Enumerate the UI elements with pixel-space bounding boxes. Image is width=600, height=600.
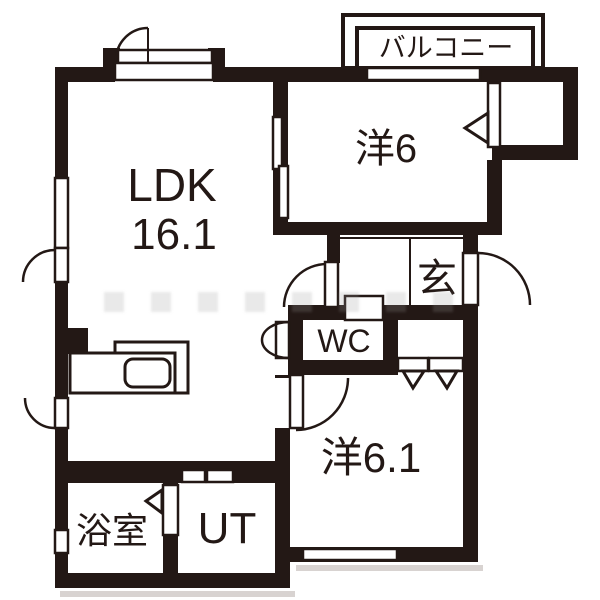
wall-segment: [55, 67, 68, 588]
kitchen-wall-stub: [55, 328, 88, 354]
watermark: [104, 292, 453, 312]
building-shadow: [296, 565, 483, 571]
watermark-glyph: [292, 292, 312, 312]
watermark-glyph: [433, 292, 453, 312]
door-leaf-ldk-hall: [325, 262, 338, 307]
sliding-door-panel-ut: [207, 470, 233, 482]
closet-pleat-mark: [403, 371, 424, 388]
watermark-glyph: [386, 292, 406, 312]
watermark-glyph: [151, 292, 171, 312]
wall-segment: [288, 360, 398, 375]
casement-leaf-left-lower: [55, 398, 68, 428]
sliding-door-panel-ldk-bedroom1: [273, 117, 282, 169]
bifold-door-leaf-storage: [276, 322, 289, 358]
door-track-top: [115, 63, 213, 80]
wall-segment: [273, 222, 502, 235]
door-arrow-bathroom: [146, 490, 162, 513]
door-leaf-bedroom2: [290, 375, 303, 428]
entrance-door-swing-arc: [478, 253, 530, 305]
wall-segment: [213, 48, 225, 82]
kitchen-sink: [125, 359, 170, 387]
closet-door-panel-bedroom2: [429, 358, 463, 371]
closet-arrow-bedroom1: [465, 113, 488, 143]
window-bedroom2: [303, 549, 397, 560]
wall-segment: [55, 461, 290, 483]
closet-door-panel-bedroom2: [398, 358, 428, 371]
watermark-glyph: [339, 292, 359, 312]
door-leaf-bathroom: [163, 485, 178, 535]
casement-leaf-left-upper: [55, 248, 68, 282]
casement-swing-left-lower: [25, 398, 55, 428]
window-bathroom: [55, 530, 68, 553]
label-balcony: バルコニー: [379, 33, 513, 63]
window-balcony: [367, 68, 480, 80]
watermark-glyph: [245, 292, 265, 312]
window-left-upper: [55, 178, 68, 248]
label-bedroom1: 洋6: [355, 127, 417, 171]
wall-segment: [492, 145, 578, 160]
hall-door-wall-stub: [327, 235, 340, 263]
sliding-door-panel-ldk-bedroom1: [279, 166, 288, 218]
closet-door-track-bedroom1: [488, 83, 500, 147]
wall-segment: [103, 48, 115, 82]
label-toilet: WC: [317, 323, 370, 359]
closet-pleat-mark: [436, 371, 457, 388]
watermark-glyph: [198, 292, 218, 312]
building-shadow: [60, 591, 295, 597]
entrance-door-leaf: [463, 253, 478, 305]
floor-plan: バルコニー 洋6 LDK 16.1 玄 WC 洋6.1 浴室 UT: [0, 0, 600, 600]
label-ldk: LDK: [127, 159, 217, 211]
label-utility: UT: [198, 504, 257, 553]
label-bedroom2: 洋6.1: [321, 434, 421, 481]
label-bathroom: 浴室: [76, 510, 148, 551]
watermark-glyph: [104, 292, 124, 312]
door-track-top: [118, 50, 212, 63]
label-ldk-area: 16.1: [131, 210, 217, 259]
floor-plan-canvas: バルコニー 洋6 LDK 16.1 玄 WC 洋6.1 浴室 UT: [0, 0, 600, 600]
sliding-door-panel-ut: [182, 470, 205, 482]
wall-segment: [55, 573, 290, 588]
casement-swing-left-upper: [23, 250, 55, 282]
doorway-gap-bedroom2: [275, 378, 290, 428]
